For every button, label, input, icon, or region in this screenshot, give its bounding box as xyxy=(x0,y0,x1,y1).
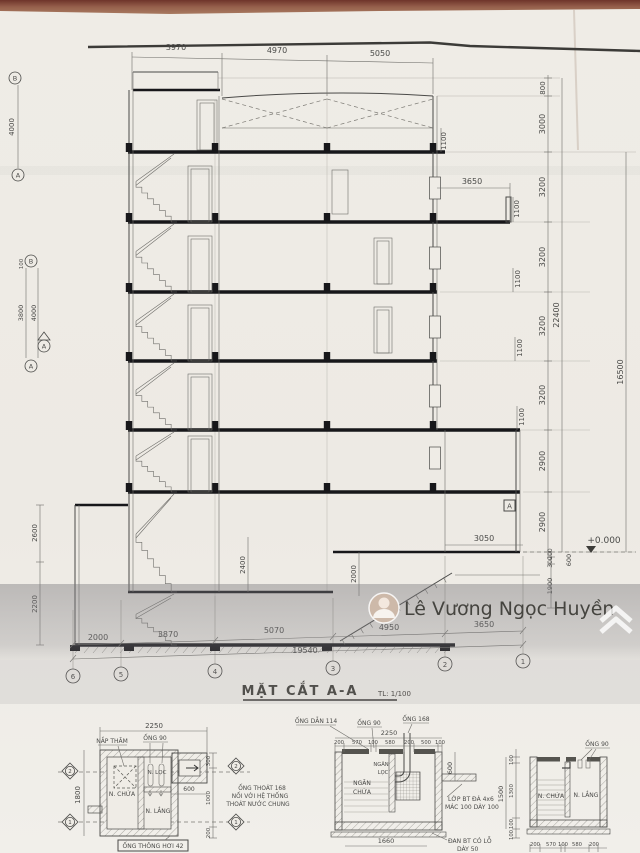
svg-text:100: 100 xyxy=(19,258,25,269)
svg-text:200: 200 xyxy=(589,842,599,848)
svg-text:A: A xyxy=(42,343,47,351)
svg-text:ĐAN BT CÓ LỖ: ĐAN BT CÓ LỖ xyxy=(448,837,492,845)
svg-text:1100: 1100 xyxy=(514,270,522,288)
section-drawing: 3970 4970 5050 800 3000 3200 3200 3200 3… xyxy=(0,0,640,853)
svg-text:1100: 1100 xyxy=(513,200,521,218)
watermark-name: Lê Vương Ngọc Huyền xyxy=(404,598,614,620)
svg-text:1: 1 xyxy=(234,820,238,826)
svg-text:200: 200 xyxy=(530,842,540,848)
level-label: +0.000 xyxy=(587,536,621,546)
svg-text:2250: 2250 xyxy=(381,729,398,737)
svg-text:B: B xyxy=(29,258,33,266)
svg-text:600: 600 xyxy=(183,786,195,793)
svg-text:2900: 2900 xyxy=(538,512,547,532)
svg-text:NỐI VỚI HỆ THỐNG: NỐI VỚI HỆ THỐNG xyxy=(232,792,289,800)
dim-label: 3970 xyxy=(166,43,186,52)
svg-text:LỚP BT ĐÁ 4x6: LỚP BT ĐÁ 4x6 xyxy=(448,796,494,803)
svg-text:2900: 2900 xyxy=(538,451,547,471)
svg-text:16500: 16500 xyxy=(616,359,625,384)
svg-text:3650: 3650 xyxy=(462,177,482,186)
svg-text:2: 2 xyxy=(234,764,238,770)
svg-text:ỐNG 90: ỐNG 90 xyxy=(585,740,609,748)
svg-text:A: A xyxy=(16,172,21,180)
svg-text:NGĂN: NGĂN xyxy=(373,761,388,768)
svg-text:2250: 2250 xyxy=(145,722,163,730)
shadow-band-2 xyxy=(0,660,640,704)
detail-tank-section2: ỐNG 90 N. CHỨA N. LẮNG 1500 100 1300 100… xyxy=(497,740,610,852)
svg-text:22400: 22400 xyxy=(552,302,561,327)
svg-text:N. CHỨA: N. CHỨA xyxy=(109,791,136,798)
svg-text:2600: 2600 xyxy=(31,524,39,542)
svg-text:580: 580 xyxy=(572,842,582,848)
detail-septic-plan: NẮP THĂM ỐNG 90 N. CHỨA N. LỌC N. LẮNG 6… xyxy=(58,717,368,851)
svg-text:2400: 2400 xyxy=(239,556,247,574)
svg-text:100: 100 xyxy=(368,740,378,746)
svg-text:N. CHỨA: N. CHỨA xyxy=(538,793,565,800)
svg-text:200: 200 xyxy=(334,740,344,746)
svg-text:4000: 4000 xyxy=(30,305,38,322)
svg-text:3200: 3200 xyxy=(538,385,547,405)
svg-text:570: 570 xyxy=(352,740,362,746)
svg-text:LỌC: LỌC xyxy=(378,770,389,776)
svg-text:1500: 1500 xyxy=(497,786,505,803)
svg-text:200: 200 xyxy=(404,740,414,746)
svg-text:ỐNG 90: ỐNG 90 xyxy=(357,719,381,727)
svg-text:3000: 3000 xyxy=(538,114,547,134)
svg-text:300: 300 xyxy=(206,755,212,766)
label-ong-dan: ỐNG DẪN 114 xyxy=(295,717,338,725)
svg-text:1100: 1100 xyxy=(518,408,526,426)
svg-text:N. LẮNG: N. LẮNG xyxy=(146,807,171,815)
svg-text:3800: 3800 xyxy=(17,305,25,322)
svg-text:DÀY 50: DÀY 50 xyxy=(457,846,479,853)
svg-text:3050: 3050 xyxy=(474,534,494,543)
svg-text:300: 300 xyxy=(547,556,554,568)
svg-text:1000: 1000 xyxy=(206,791,212,805)
svg-text:4000: 4000 xyxy=(8,118,16,136)
svg-text:3200: 3200 xyxy=(538,316,547,336)
svg-text:1: 1 xyxy=(68,820,72,826)
section-marker-a: A xyxy=(38,332,50,352)
svg-text:800: 800 xyxy=(539,81,547,94)
stairs xyxy=(136,154,177,645)
svg-text:580: 580 xyxy=(385,740,395,746)
svg-text:3200: 3200 xyxy=(538,247,547,267)
doors-windows xyxy=(188,166,441,492)
dim-label: 5050 xyxy=(370,49,390,58)
svg-text:100: 100 xyxy=(435,740,445,746)
svg-text:570: 570 xyxy=(546,842,556,848)
svg-text:1100: 1100 xyxy=(440,132,448,150)
x-brace xyxy=(222,99,433,128)
svg-text:1660: 1660 xyxy=(378,837,395,845)
svg-text:3200: 3200 xyxy=(538,177,547,197)
svg-text:A: A xyxy=(507,503,512,511)
table-edge xyxy=(0,0,640,14)
svg-text:1300: 1300 xyxy=(509,784,515,798)
label-nap-tham: NẮP THĂM xyxy=(96,737,128,745)
svg-text:B: B xyxy=(13,75,17,83)
svg-text:600: 600 xyxy=(446,762,454,774)
svg-text:N. LẮNG: N. LẮNG xyxy=(574,791,599,799)
svg-text:NGĂN: NGĂN xyxy=(353,780,371,787)
detail-septic-section: ỐNG 90 ỐNG 168 2250 200 570 100 580 200 … xyxy=(331,715,499,853)
svg-text:100: 100 xyxy=(558,842,568,848)
svg-text:600: 600 xyxy=(565,554,573,566)
svg-text:CHỨA: CHỨA xyxy=(353,789,372,796)
svg-text:A: A xyxy=(29,363,34,371)
svg-text:100: 100 xyxy=(509,819,515,829)
shadow-band xyxy=(0,584,640,660)
svg-text:THOÁT NƯỚC CHUNG: THOÁT NƯỚC CHUNG xyxy=(225,801,290,808)
svg-text:1100: 1100 xyxy=(516,339,524,357)
svg-text:2000: 2000 xyxy=(350,565,358,583)
svg-text:ỐNG THOÁT 168: ỐNG THOÁT 168 xyxy=(238,784,286,792)
note-drain: ỐNG THOÁT 168 NỐI VỚI HỆ THỐNG THOÁT NƯỚ… xyxy=(225,784,290,808)
dim-label: 4970 xyxy=(267,46,287,55)
svg-text:100: 100 xyxy=(509,755,515,765)
label-vent: ỐNG THÔNG HƠI 42 xyxy=(122,842,183,850)
label-ong90: ỐNG 90 xyxy=(143,734,167,742)
svg-text:ỐNG 168: ỐNG 168 xyxy=(402,715,429,723)
svg-text:500: 500 xyxy=(421,740,431,746)
svg-text:100: 100 xyxy=(509,830,515,840)
drawing-photo: 3970 4970 5050 800 3000 3200 3200 3200 3… xyxy=(0,0,640,853)
svg-text:MÁC 100 DÀY 100: MÁC 100 DÀY 100 xyxy=(445,804,499,811)
svg-text:N. LỌC: N. LỌC xyxy=(148,770,167,776)
svg-text:1800: 1800 xyxy=(74,786,82,804)
svg-text:200: 200 xyxy=(206,827,212,838)
columns xyxy=(70,143,450,651)
svg-text:2: 2 xyxy=(68,769,72,775)
